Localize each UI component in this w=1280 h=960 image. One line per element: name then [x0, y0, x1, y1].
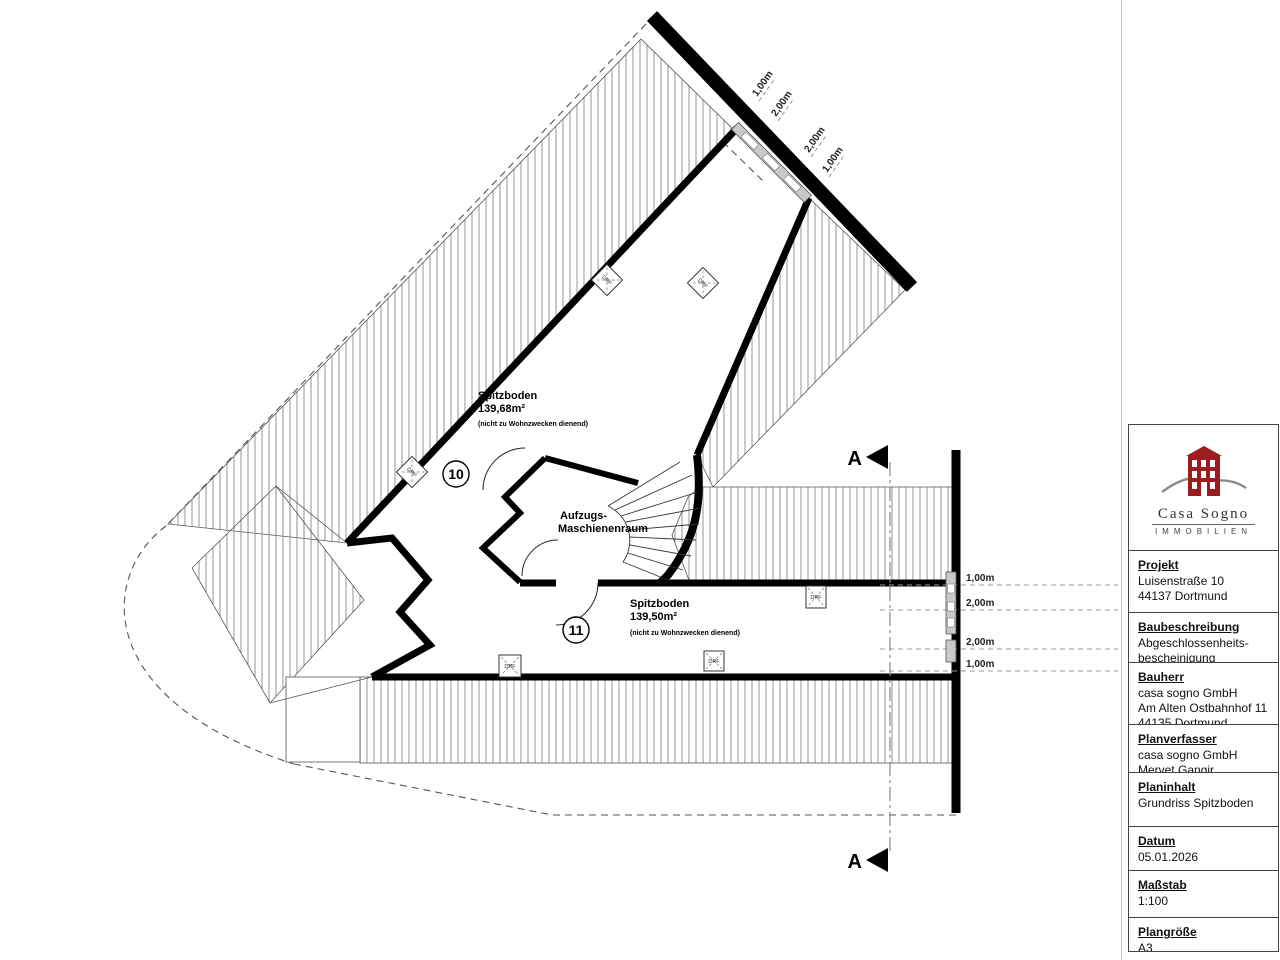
room10-label: Spitzboden 139,68m² (nicht zu Wohnzwecke…	[478, 390, 588, 428]
window-band-east-2	[946, 640, 956, 662]
field-heading: Datum	[1138, 834, 1278, 848]
titleblock-plangroesse: Plangröße A3	[1128, 917, 1279, 952]
room-name: Spitzboden	[478, 390, 538, 402]
dim-label: 1,00m	[750, 69, 775, 99]
logo-wordmark: Casa Sogno	[1152, 506, 1255, 525]
titleblock-baubeschreibung: Baubeschreibung Abgeschlossenheits- besc…	[1128, 612, 1279, 663]
door-arc-machineroom	[522, 540, 558, 576]
room-area: 139,50m²	[630, 611, 677, 623]
room-area: 139,68m²	[478, 403, 525, 415]
field-value: 44137 Dortmund	[1138, 589, 1278, 604]
field-heading: Maßstab	[1138, 878, 1278, 892]
room11-label: Spitzboden 139,50m² (nicht zu Wohnzwecke…	[630, 598, 740, 637]
field-value: A3	[1138, 941, 1278, 952]
dim-label: 2,00m	[802, 125, 827, 155]
casa-sogno-logo-icon	[1156, 444, 1252, 506]
field-heading: Projekt	[1138, 558, 1278, 572]
room-name: Spitzboden	[630, 598, 690, 610]
floor-plan: 1,00m 2,00m 2,00m 1,00m	[0, 0, 1280, 960]
section-label-top: A	[848, 448, 862, 470]
dim-label: 1,00m	[966, 573, 994, 584]
dim-label: 1,00m	[820, 145, 845, 175]
field-heading: Plangröße	[1138, 925, 1278, 939]
drf-marker-label: DRF	[504, 664, 516, 670]
room-number-11: 11	[563, 617, 589, 643]
logo-subtitle: IMMOBILIEN	[1155, 527, 1252, 536]
roof-band-east-lower	[360, 677, 956, 763]
field-value: 1:100	[1138, 894, 1278, 909]
titleblock-planinhalt: Planinhalt Grundriss Spitzboden	[1128, 772, 1279, 827]
dim-label: 2,00m	[966, 637, 994, 648]
field-value: 05.01.2026	[1138, 850, 1278, 865]
machine-room-label: Aufzugs- Maschienenraum	[558, 510, 648, 535]
field-heading: Baubeschreibung	[1138, 620, 1278, 634]
section-arrow-top	[866, 445, 888, 469]
sheet-divider-line	[1121, 0, 1122, 960]
dim-label: 2,00m	[966, 598, 994, 609]
roof-band-east-upper	[672, 487, 956, 583]
dim-label: 1,00m	[966, 659, 994, 670]
titleblock-bauherr: Bauherr casa sogno GmbH Am Alten Ostbahn…	[1128, 662, 1279, 725]
wall-machineroom-west	[483, 458, 545, 582]
field-heading: Planinhalt	[1138, 780, 1278, 794]
wall-west-zigzag	[347, 538, 430, 677]
machine-room-line2: Maschienenraum	[558, 523, 648, 535]
titleblock-planverfasser: Planverfasser casa sogno GmbH Mervet Gan…	[1128, 724, 1279, 773]
room-note: (nicht zu Wohnzwecken dienend)	[630, 630, 740, 637]
field-value: Grundriss Spitzboden	[1138, 796, 1278, 811]
field-value: Luisenstraße 10	[1138, 574, 1278, 589]
room-note: (nicht zu Wohnzwecken dienend)	[478, 421, 588, 428]
field-value: casa sogno GmbH	[1138, 748, 1278, 763]
room-number-label: 11	[569, 622, 584, 638]
titleblock-datum: Datum 05.01.2026	[1128, 826, 1279, 871]
dims-east: 1,00m 2,00m 2,00m 1,00m	[880, 572, 1118, 671]
drf-marker-label: DRF	[810, 595, 822, 601]
door-swings	[483, 448, 598, 625]
field-value: Am Alten Ostbahnhof 11	[1138, 701, 1278, 716]
section-label-bottom: A	[848, 851, 862, 873]
field-value: Abgeschlossenheits-	[1138, 636, 1278, 651]
room-number-10: 10	[443, 461, 469, 487]
titleblock-projekt: Projekt Luisenstraße 10 44137 Dortmund	[1128, 550, 1279, 613]
dim-label: 2,00m	[769, 89, 794, 119]
field-heading: Bauherr	[1138, 670, 1278, 684]
wall-machineroom-top	[545, 458, 638, 483]
machine-room-line1: Aufzugs-	[560, 510, 607, 522]
titleblock-massstab: Maßstab 1:100	[1128, 870, 1279, 918]
logo-box: Casa Sogno IMMOBILIEN	[1128, 424, 1279, 551]
title-block: Casa Sogno IMMOBILIEN Projekt Luisenstra…	[1128, 425, 1279, 952]
drawing-sheet: 1,00m 2,00m 2,00m 1,00m	[0, 0, 1280, 960]
field-value: casa sogno GmbH	[1138, 686, 1278, 701]
field-heading: Planverfasser	[1138, 732, 1278, 746]
section-arrow-bottom	[866, 848, 888, 872]
drf-marker-label: DRF	[708, 659, 720, 665]
room-number-label: 10	[448, 466, 464, 482]
